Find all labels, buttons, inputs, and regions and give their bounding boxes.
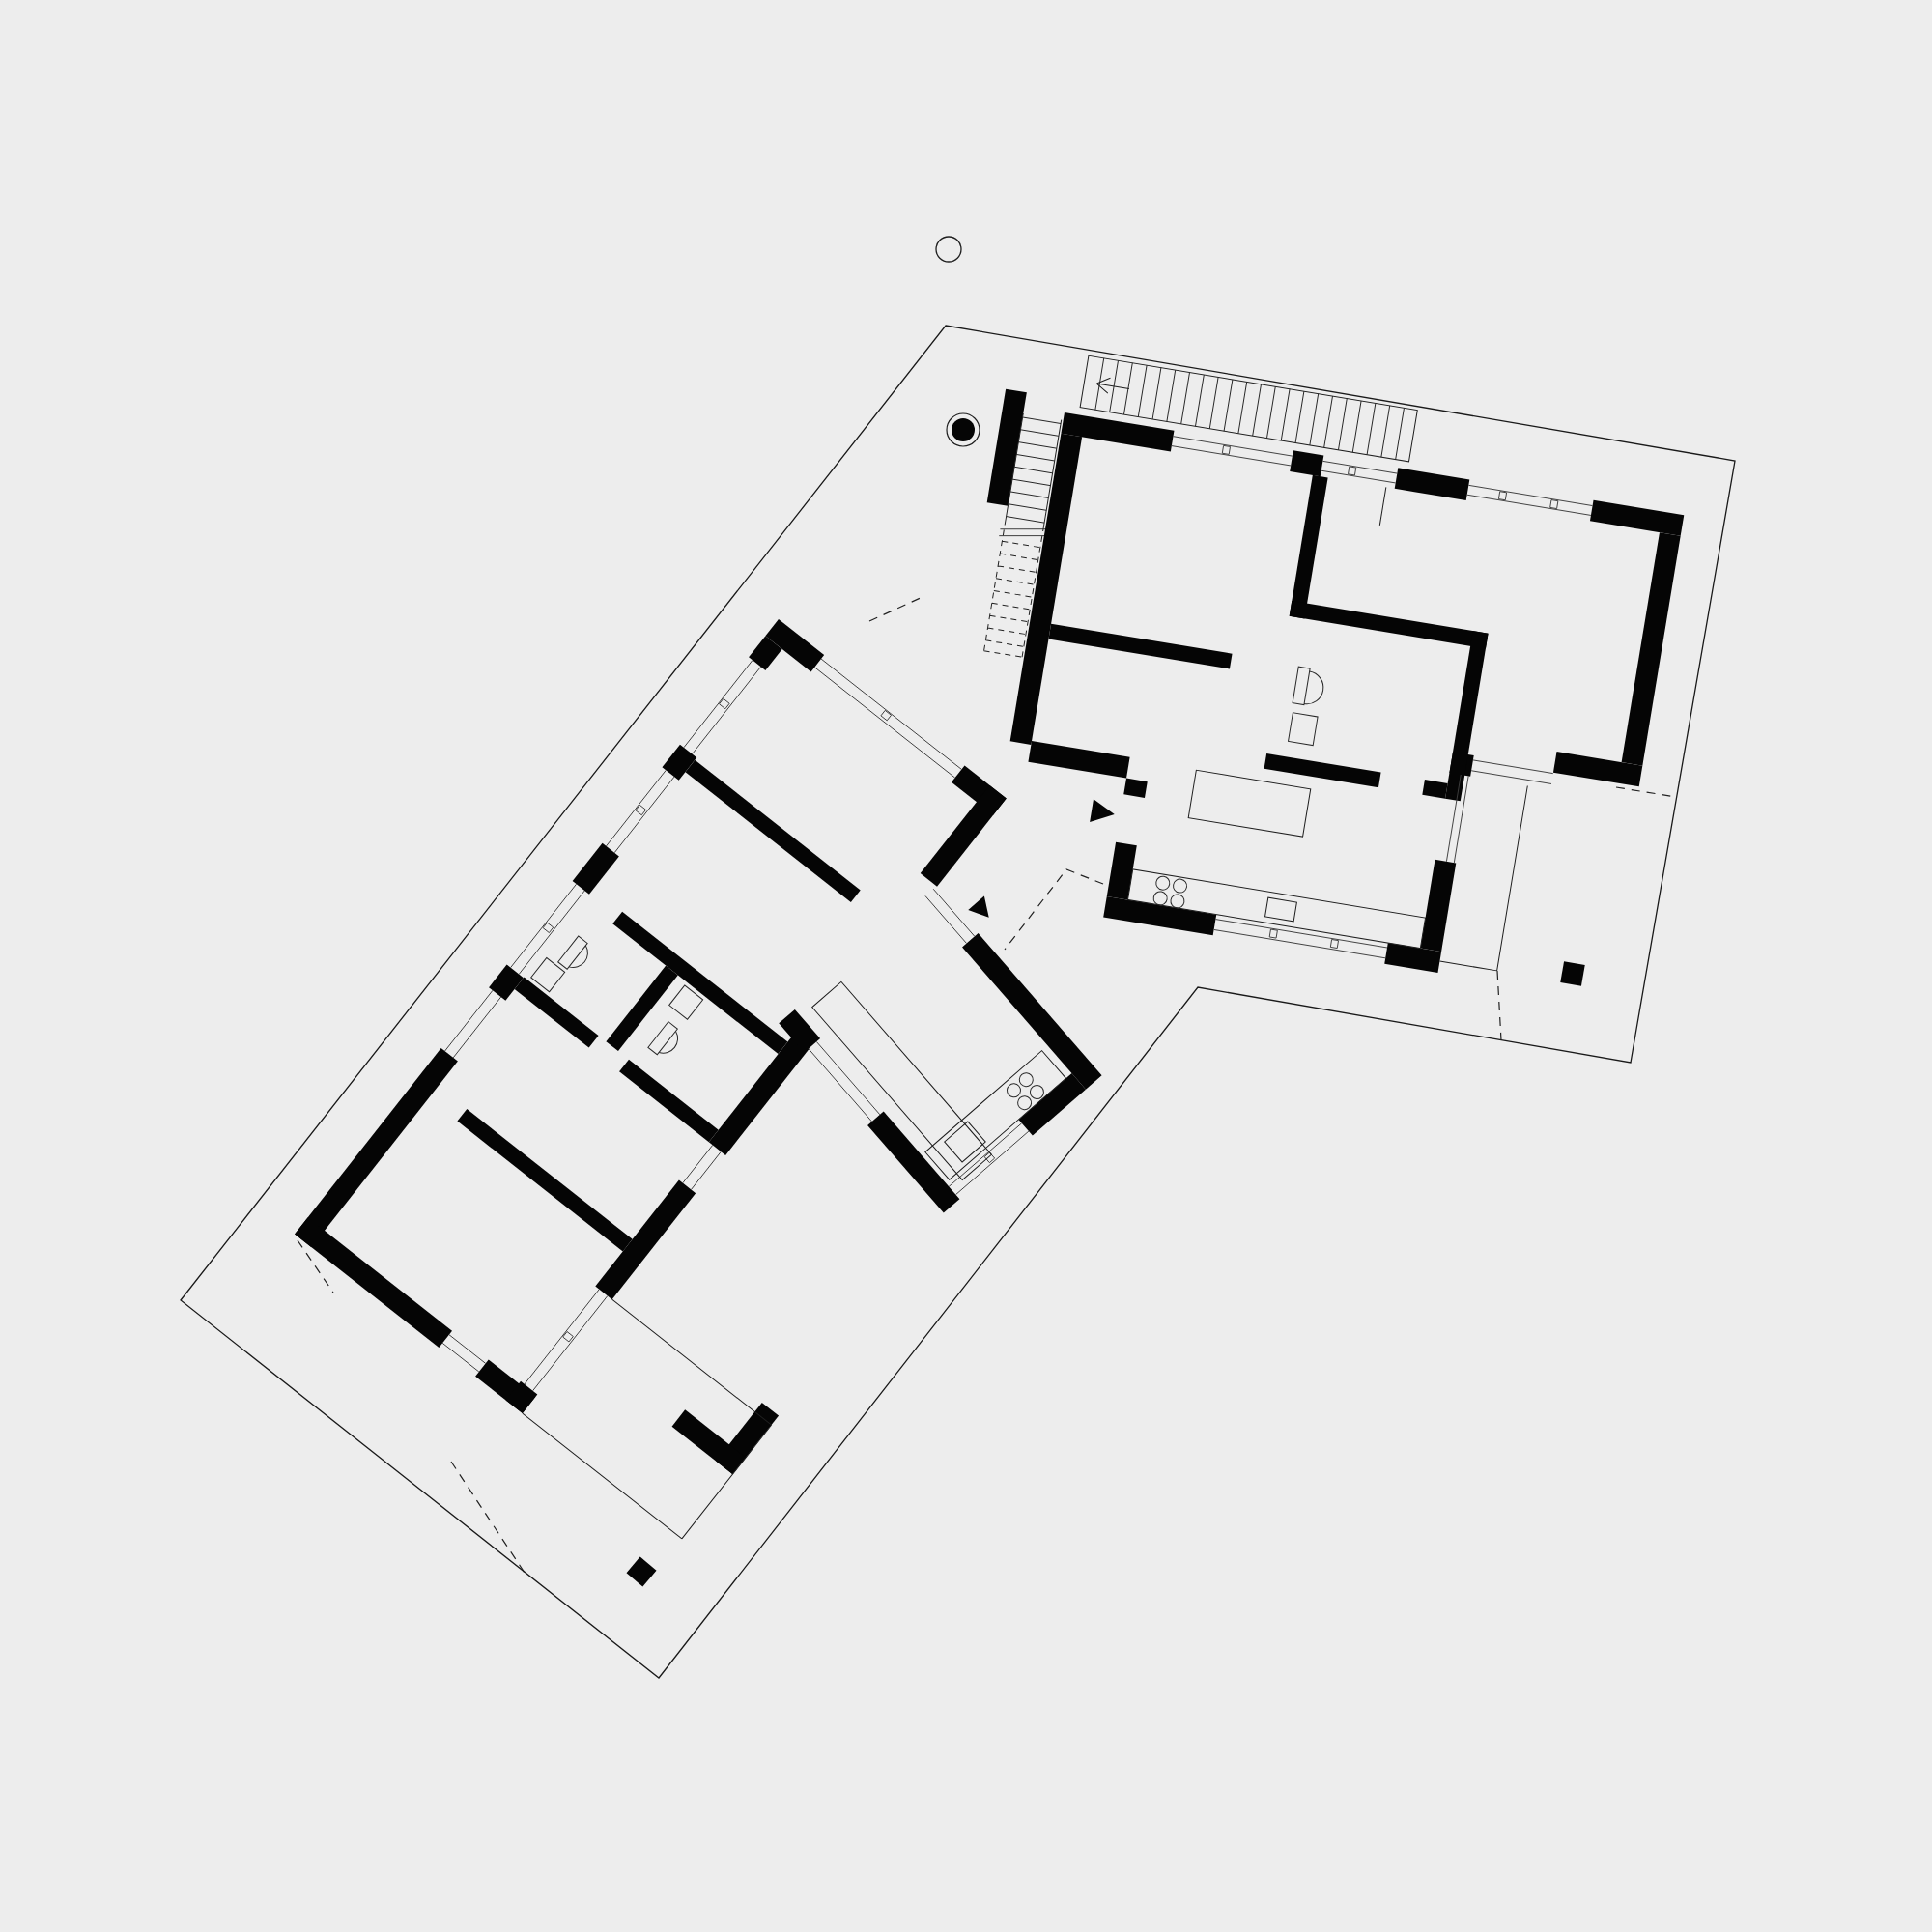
drawing-background [0, 0, 1932, 1932]
floor-plan-page [0, 0, 1932, 1932]
wall-entry-jamb-top [1123, 779, 1147, 798]
floor-plan-drawing [0, 0, 1932, 1932]
post-upper [1560, 961, 1584, 985]
well-symbol-core [952, 418, 975, 441]
